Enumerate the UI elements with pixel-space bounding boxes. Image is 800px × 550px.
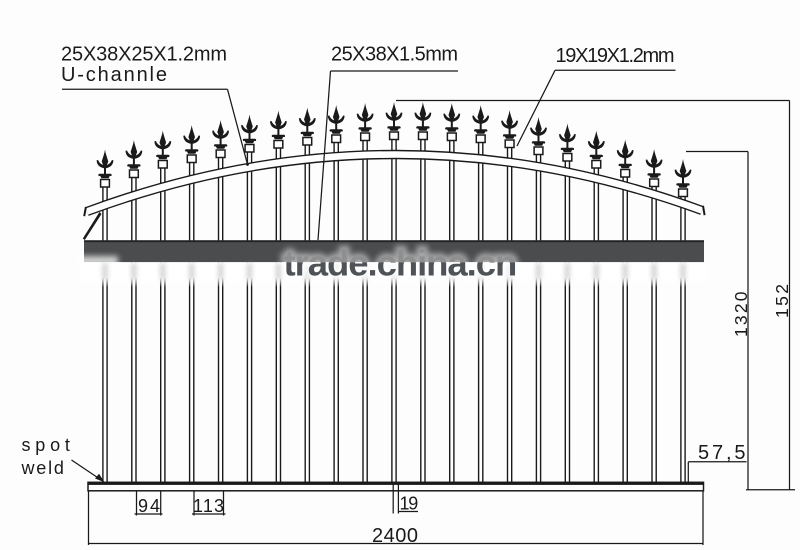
svg-text:U-channle: U-channle (61, 64, 169, 86)
svg-text:25X38X25X1.2mm: 25X38X25X1.2mm (61, 44, 227, 66)
svg-text:weld: weld (21, 458, 66, 478)
svg-text:25X38X1.5mm: 25X38X1.5mm (331, 44, 457, 66)
svg-text:spot: spot (22, 435, 75, 455)
svg-text:19X19X1.2mm: 19X19X1.2mm (556, 45, 674, 67)
svg-text:113: 113 (193, 496, 225, 516)
svg-text:2400: 2400 (372, 525, 419, 547)
svg-text:57,5: 57,5 (698, 442, 748, 464)
svg-text:19: 19 (400, 494, 419, 514)
svg-text:1320: 1320 (731, 289, 751, 337)
svg-text:152: 152 (772, 282, 792, 318)
svg-text:94: 94 (138, 496, 162, 516)
